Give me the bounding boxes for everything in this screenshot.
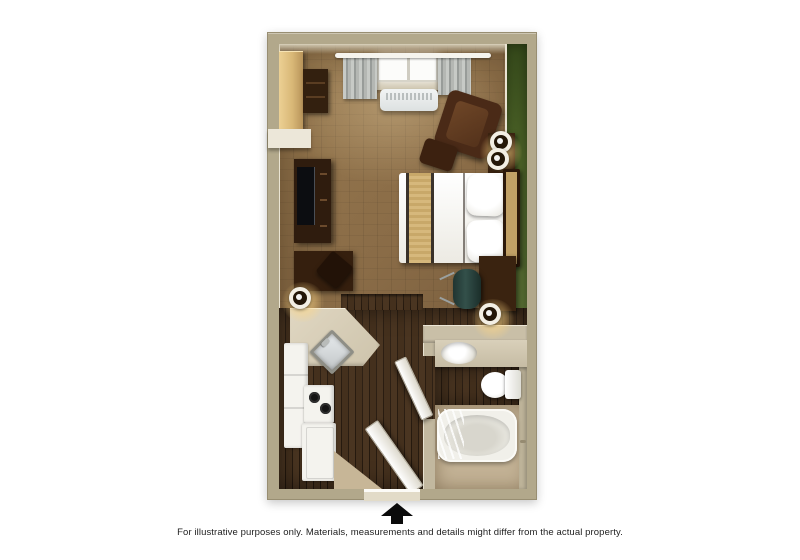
dishwasher-icon bbox=[302, 423, 336, 481]
bathroom-sink-icon bbox=[441, 342, 477, 364]
floor-plan bbox=[267, 32, 537, 500]
burner-icon bbox=[309, 392, 320, 403]
suite-interior bbox=[279, 44, 527, 489]
pillow-icon bbox=[466, 173, 505, 216]
tv-icon bbox=[297, 167, 315, 225]
bed-icon bbox=[399, 171, 523, 265]
curtain-rod-icon bbox=[335, 53, 491, 58]
closet-ledge bbox=[268, 129, 311, 148]
nightstand-icon bbox=[479, 256, 516, 311]
toilet-tank-icon bbox=[505, 370, 521, 399]
bathroom-left-wall-upper bbox=[423, 343, 435, 356]
towel-hook-icon bbox=[520, 440, 526, 443]
curtains-icon bbox=[343, 54, 377, 99]
bathroom bbox=[423, 325, 527, 489]
disclaimer-text: For illustrative purposes only. Material… bbox=[0, 527, 800, 538]
hall-threshold-floor bbox=[341, 294, 423, 310]
window-icon bbox=[377, 56, 438, 82]
tv-console-icon bbox=[294, 159, 331, 243]
table-lamp-icon bbox=[487, 148, 509, 170]
burner-icon bbox=[320, 403, 331, 414]
office-chair-icon bbox=[453, 269, 481, 309]
bed-runner-icon bbox=[409, 173, 431, 263]
bathroom-left-wall-lower bbox=[423, 419, 435, 489]
desk-lamp-icon bbox=[289, 287, 311, 309]
nightstand-lamp-icon bbox=[479, 303, 501, 325]
entrance-arrow-stem bbox=[391, 515, 403, 524]
headboard-icon bbox=[503, 169, 520, 267]
stove-icon bbox=[304, 385, 334, 423]
entry-doorway-gap bbox=[364, 489, 420, 501]
shower-curtain-icon bbox=[438, 409, 464, 459]
ac-unit-icon bbox=[380, 89, 438, 111]
shelf-unit-icon bbox=[303, 69, 328, 113]
wardrobe-icon bbox=[279, 51, 303, 129]
